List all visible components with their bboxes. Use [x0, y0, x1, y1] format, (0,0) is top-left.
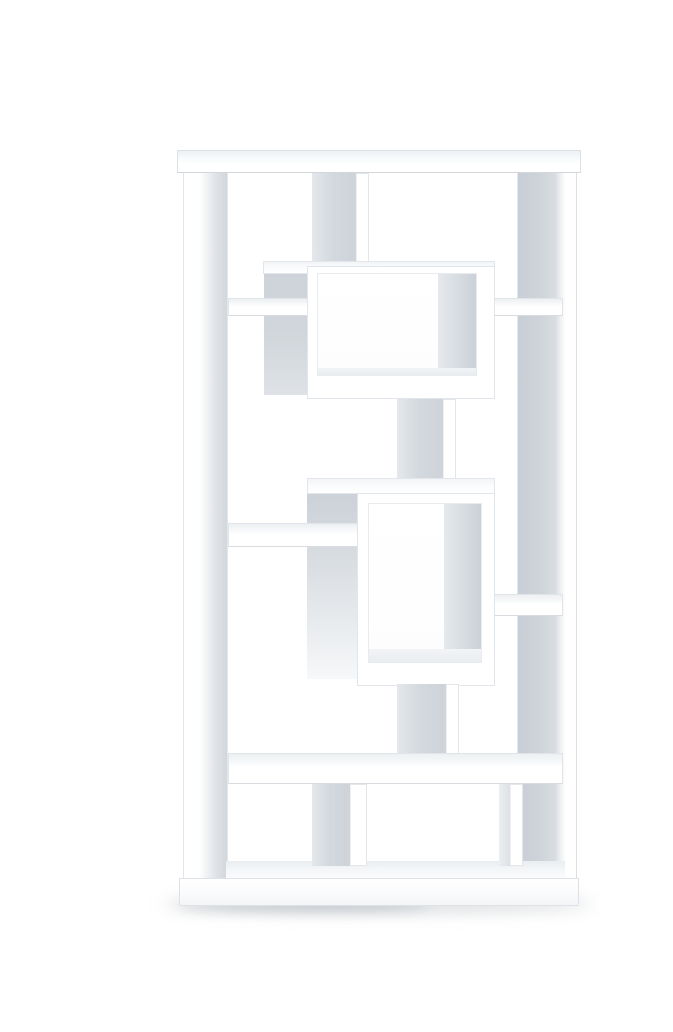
middle-display-cube-side-face — [307, 481, 358, 679]
mid-left-shelf — [228, 523, 358, 547]
base-kickboard — [179, 878, 579, 906]
middle-display-cube-opening — [368, 503, 482, 663]
left-side-panel — [183, 172, 228, 880]
bottom-right-divider-side-face — [499, 784, 510, 866]
top-divider-side-face — [312, 173, 357, 262]
upper-left-shelf — [228, 298, 310, 316]
bottom-left-divider-side-face — [312, 784, 350, 866]
bookcase-photo — [40, 16, 673, 1016]
mid-lower-divider — [446, 684, 459, 755]
middle-cube-inner-right-wall — [444, 504, 481, 662]
upper-cube-inner-bottom-wall — [318, 368, 476, 375]
upper-display-cube-opening — [317, 273, 477, 376]
middle-display-cube-top-face — [307, 478, 495, 494]
long-bottom-shelf — [228, 753, 563, 784]
mid-upper-divider-side-face — [397, 399, 444, 479]
upper-display-cube-side-face — [264, 271, 308, 395]
bottom-right-divider — [510, 784, 523, 866]
bottom-left-divider — [350, 784, 367, 866]
mid-lower-divider-side-face — [397, 684, 447, 755]
top-cap — [177, 150, 581, 173]
mid-upper-divider — [443, 399, 456, 479]
top-divider — [356, 173, 369, 262]
middle-cube-inner-bottom-wall — [369, 649, 481, 662]
upper-cube-inner-right-wall — [438, 274, 476, 375]
